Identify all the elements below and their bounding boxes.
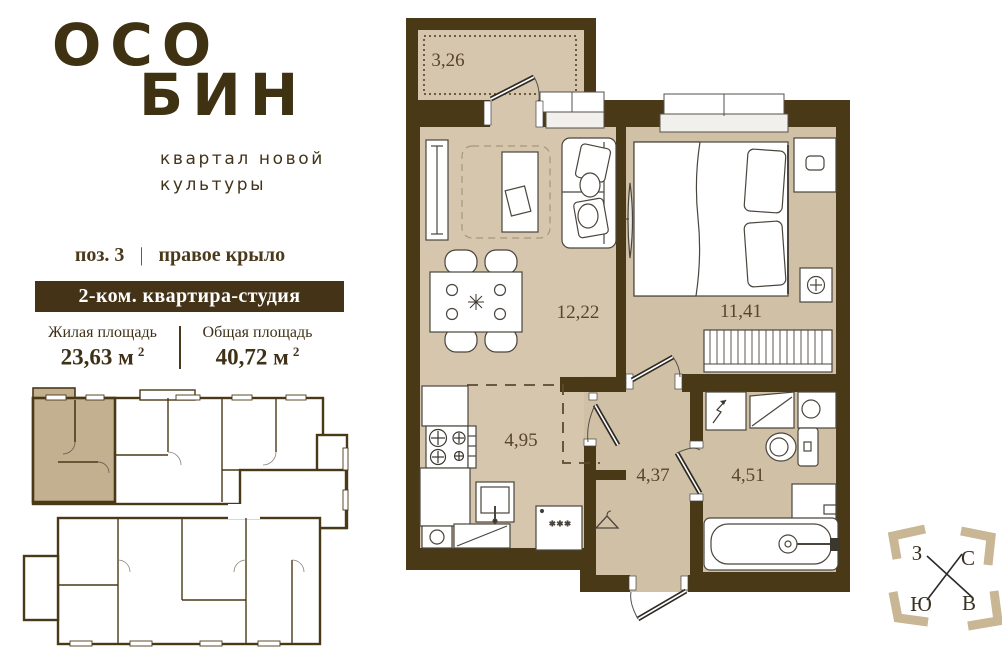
living-area-block: Жилая площадь 23,63 м2: [26, 324, 179, 371]
total-area-block: Общая площадь 40,72 м2: [181, 324, 334, 371]
windows: [540, 92, 788, 132]
apartment-type-banner: 2-ком. квартира-студия: [35, 281, 344, 312]
total-area-value: 40,72 м2: [181, 344, 334, 371]
hallway-area-label: 4,37: [636, 465, 669, 486]
compass-brackets: [893, 529, 998, 626]
position-separator: |: [139, 244, 143, 267]
building-overview-plan: [10, 386, 355, 652]
mirror: [628, 183, 633, 258]
living-area-label-on-plan: 12,22: [557, 302, 600, 323]
apartment-floorplan: ***: [398, 10, 860, 653]
compass-east: В: [962, 591, 976, 615]
total-area-label: Общая площадь: [181, 324, 334, 342]
compass-south: Ю: [910, 592, 932, 616]
position-line: поз. 3 | правое крыло: [0, 244, 360, 267]
compass-north: С: [961, 546, 975, 570]
wing-label: правое крыло: [158, 244, 285, 267]
brand-tagline-line1: квартал новой: [160, 146, 325, 172]
bathtub: [704, 518, 840, 570]
kitchen-area-label: 4,95: [504, 430, 537, 451]
compass-rose: З С Ю В: [885, 520, 1002, 650]
bathroom-area-label: 4,51: [731, 465, 764, 486]
brand-tagline-line2: культуры: [160, 172, 325, 198]
water-heater: [706, 392, 746, 430]
balcony-area-label: 3,26: [431, 50, 464, 71]
brand-tagline: квартал новой культуры: [160, 146, 325, 198]
bedroom-area-label: 11,41: [720, 301, 762, 322]
compass-west: З: [912, 541, 923, 565]
brand-logo-line2: БИН: [139, 66, 307, 124]
building-left-annex: [24, 556, 58, 620]
areas-block: Жилая площадь 23,63 м2 Общая площадь 40,…: [26, 324, 334, 371]
highlighted-unit[interactable]: [33, 388, 115, 502]
position-label: поз. 3: [75, 244, 125, 267]
building-lower-wing: [58, 518, 320, 644]
living-area-label: Жилая площадь: [26, 324, 179, 342]
fridge: [422, 386, 468, 426]
floorplan-page: ОСО БИН квартал новой культуры поз. 3 | …: [0, 0, 1002, 653]
living-area-value: 23,63 м2: [26, 344, 179, 371]
appliance-marks: ***: [549, 519, 572, 532]
